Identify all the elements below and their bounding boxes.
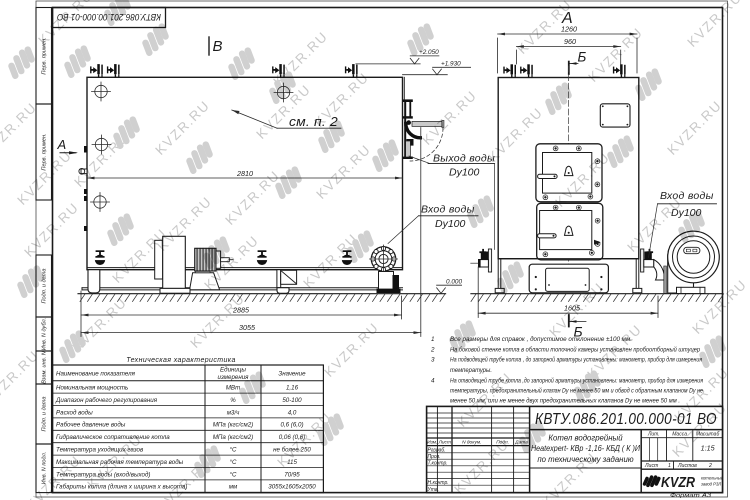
- svg-text:измерения: измерения: [218, 374, 250, 381]
- svg-text:Номинальная мощность: Номинальная мощность: [56, 385, 128, 392]
- svg-text:Формат А3: Формат А3: [670, 493, 711, 499]
- svg-text:Рабочее давление воды: Рабочее давление воды: [56, 422, 126, 429]
- svg-text:Значение: Значение: [278, 371, 306, 378]
- svg-text:°С: °С: [230, 447, 237, 454]
- svg-text:Пров.: Пров.: [428, 454, 441, 460]
- svg-text:Расход воды: Расход воды: [56, 409, 93, 416]
- svg-text:Утв.: Утв.: [428, 487, 439, 493]
- svg-text:3055: 3055: [239, 323, 256, 332]
- svg-text:1,16: 1,16: [286, 385, 299, 392]
- svg-text:KVZR: KVZR: [661, 475, 695, 491]
- svg-text:Н.контр.: Н.контр.: [428, 480, 449, 486]
- svg-text:50-100: 50-100: [282, 397, 302, 404]
- svg-text:Листов: Листов: [677, 463, 697, 469]
- svg-text:1:15: 1:15: [701, 444, 716, 453]
- svg-text:Подп. и дата: Подп. и дата: [42, 268, 48, 303]
- svg-text:Подп. и дата: Подп. и дата: [42, 396, 48, 431]
- svg-text:м3/ч: м3/ч: [227, 409, 240, 416]
- svg-text:70/95: 70/95: [284, 471, 300, 478]
- svg-text:На боковой стенке котла в обла: На боковой стенке котла в области топочн…: [450, 345, 700, 353]
- svg-text:завод РЗЛ: завод РЗЛ: [700, 482, 721, 487]
- svg-text:960: 960: [564, 37, 576, 46]
- svg-text:Гидравлическое сопративление к: Гидравлическое сопративление котла: [56, 434, 170, 441]
- svg-text:2: 2: [430, 346, 435, 353]
- svg-text:На подводящей трубе котла ,: На подводящей трубе котла , до запорной …: [450, 356, 703, 364]
- svg-text:Инв. N дубл.: Инв. N дубл.: [42, 318, 48, 350]
- svg-text:Dy100: Dy100: [435, 218, 466, 230]
- svg-text:Все размеры для справок , допу: Все размеры для справок , допустимое отк…: [450, 335, 632, 343]
- svg-text:4,0: 4,0: [288, 409, 297, 416]
- svg-text:Взам. инв. N: Взам. инв. N: [42, 350, 48, 384]
- svg-text:0.000: 0.000: [446, 278, 462, 285]
- svg-text:3: 3: [431, 357, 435, 364]
- svg-text:Dy100: Dy100: [449, 166, 480, 178]
- svg-text:котельный: котельный: [701, 476, 724, 481]
- svg-text:температуры.: температуры.: [450, 367, 492, 374]
- svg-text:Диапазон рабочего регулировани: Диапазон рабочего регулирования: [55, 397, 158, 404]
- svg-text:Лист: Лист: [438, 440, 451, 446]
- svg-text:МПа (кгс/см2): МПа (кгс/см2): [213, 434, 253, 441]
- svg-text:0,6 (6,0): 0,6 (6,0): [280, 422, 303, 429]
- svg-text:Б: Б: [578, 50, 587, 65]
- svg-text:Единицы: Единицы: [220, 367, 246, 374]
- svg-text:2: 2: [708, 463, 712, 469]
- svg-text:2810: 2810: [236, 169, 253, 178]
- svg-text:1: 1: [431, 336, 435, 343]
- svg-text:%: %: [230, 397, 236, 404]
- svg-text:Техническая характеристика: Техническая характеристика: [126, 357, 236, 364]
- svg-text:Разраб.: Разраб.: [428, 448, 446, 454]
- svg-text:МВт: МВт: [226, 385, 240, 392]
- svg-text:+1.930: +1.930: [441, 61, 461, 68]
- svg-text:Котел водогрейный: Котел водогрейный: [548, 434, 623, 443]
- svg-text:1: 1: [668, 463, 671, 469]
- svg-text:Лист: Лист: [644, 463, 659, 469]
- svg-text:В: В: [213, 38, 223, 55]
- svg-text:Т.контр.: Т.контр.: [428, 461, 448, 467]
- svg-text:N докум.: N докум.: [462, 440, 481, 446]
- svg-text:мм: мм: [229, 484, 238, 491]
- svg-text:1260: 1260: [561, 25, 577, 34]
- svg-text:МПа (кгс/см2): МПа (кгс/см2): [213, 422, 253, 429]
- svg-text:°С: °С: [230, 471, 237, 478]
- svg-text:°С: °С: [230, 459, 237, 466]
- svg-text:На отводящей трубе котла ,до з: На отводящей трубе котла ,до запорной ар…: [450, 376, 704, 384]
- svg-text:4: 4: [431, 377, 435, 384]
- svg-text:Наименование показателя: Наименование показателя: [56, 371, 136, 378]
- svg-text:3055х1605х2050: 3055х1605х2050: [268, 484, 316, 491]
- svg-text:Изм.: Изм.: [427, 440, 437, 446]
- svg-text:KVZR.RU: KVZR.RU: [0, 99, 40, 159]
- svg-text:Вход воды: Вход воды: [421, 204, 475, 216]
- svg-text:Лит.: Лит.: [647, 432, 660, 438]
